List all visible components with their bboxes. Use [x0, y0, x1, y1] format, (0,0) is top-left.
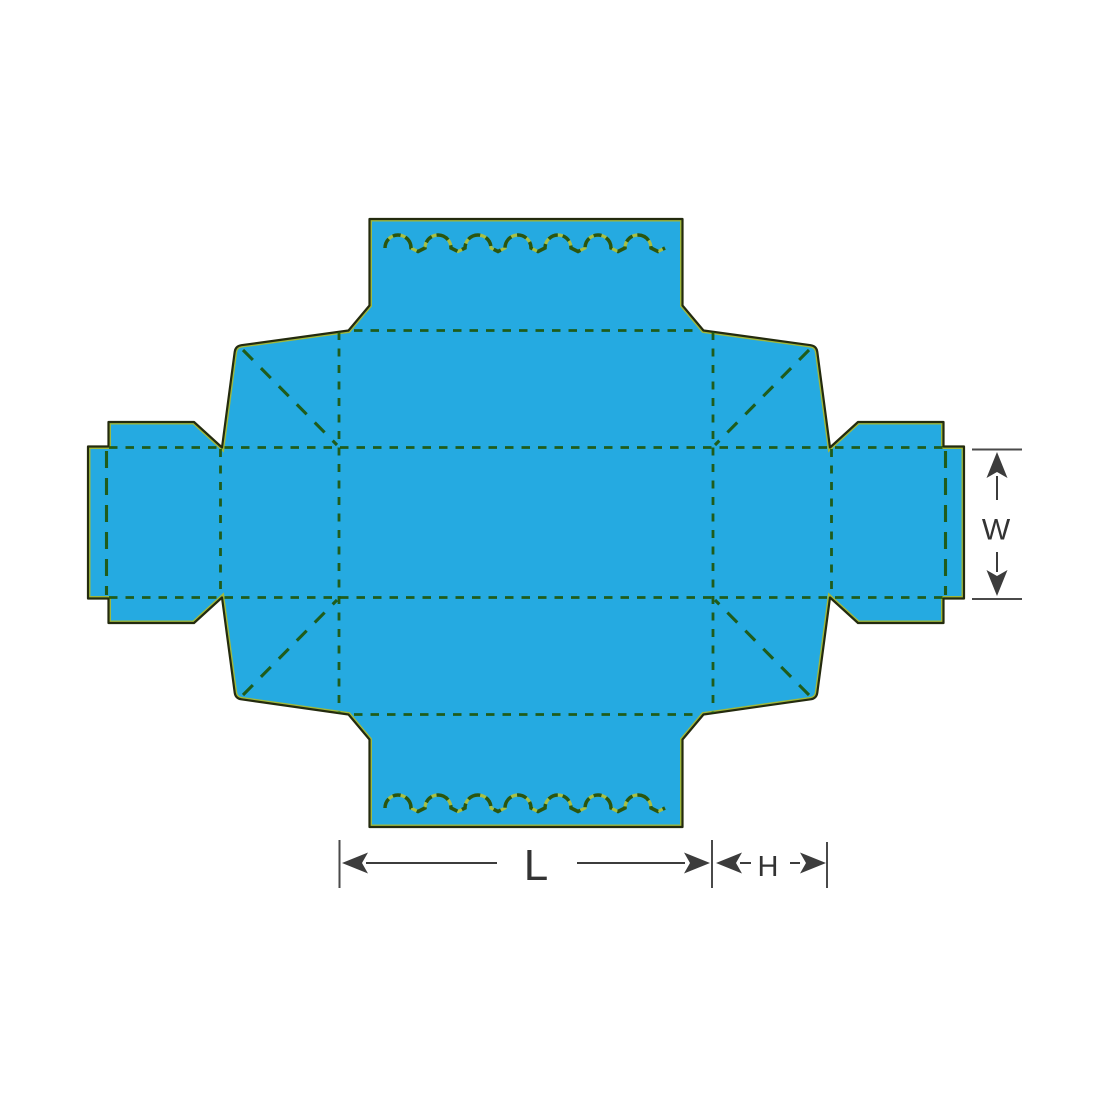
svg-text:L: L — [524, 841, 548, 890]
svg-text:W: W — [982, 514, 1011, 547]
svg-text:H: H — [758, 851, 779, 883]
